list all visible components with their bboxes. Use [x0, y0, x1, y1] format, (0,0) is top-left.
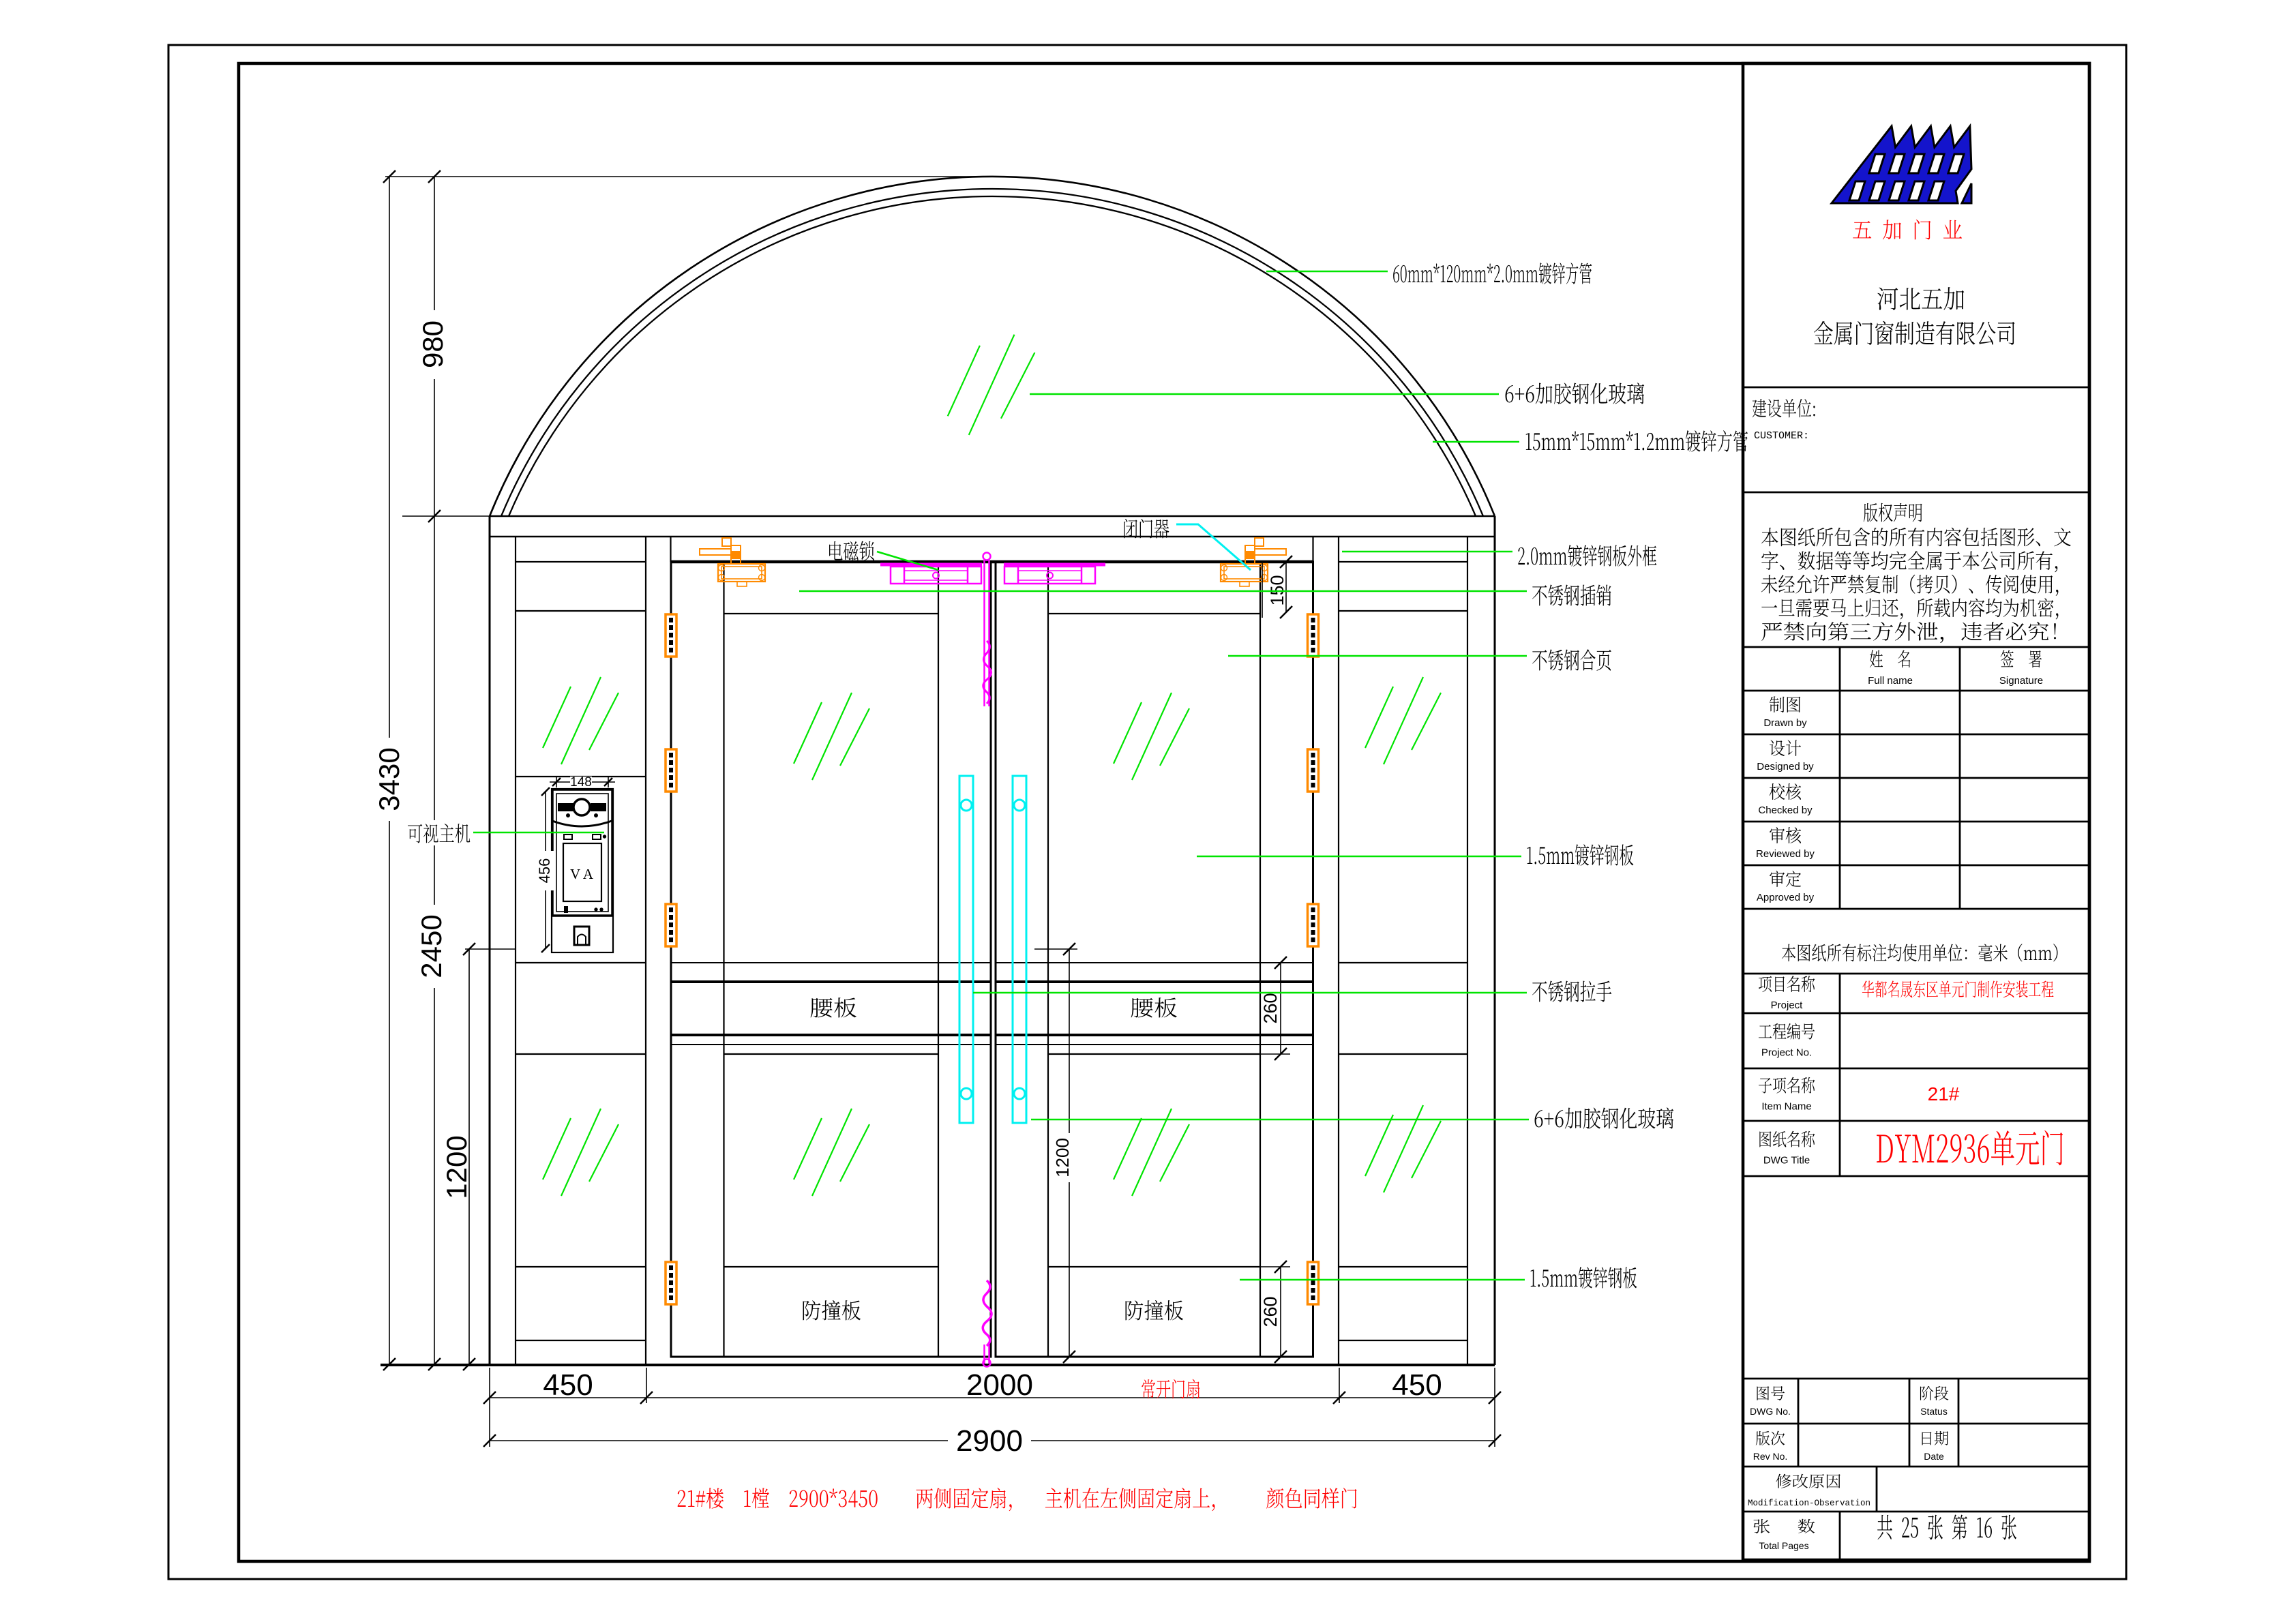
svg-text:2450: 2450 — [415, 914, 447, 978]
svg-text:2900: 2900 — [956, 1424, 1023, 1458]
svg-text:2000: 2000 — [966, 1368, 1033, 1402]
svg-text:Project: Project — [1771, 1000, 1804, 1011]
svg-text:148: 148 — [570, 775, 592, 790]
svg-text:Designed by: Designed by — [1757, 761, 1814, 772]
svg-text:V A: V A — [570, 866, 594, 882]
svg-text:450: 450 — [1392, 1368, 1442, 1402]
svg-text:Full name: Full name — [1868, 675, 1913, 687]
svg-text:Project No.: Project No. — [1761, 1047, 1812, 1059]
svg-text:Item Name: Item Name — [1761, 1101, 1811, 1113]
svg-text:CUSTOMER:: CUSTOMER: — [1754, 430, 1809, 442]
svg-text:Drawn by: Drawn by — [1763, 717, 1807, 729]
svg-text:Date: Date — [1924, 1451, 1944, 1462]
svg-text:1200: 1200 — [441, 1135, 473, 1199]
svg-text:DWG No.: DWG No. — [1750, 1406, 1791, 1417]
svg-text:260: 260 — [1260, 1296, 1281, 1327]
svg-text:456: 456 — [536, 858, 553, 884]
svg-text:Total Pages: Total Pages — [1759, 1540, 1808, 1551]
svg-text:Rev No.: Rev No. — [1753, 1451, 1788, 1462]
svg-text:DWG Title: DWG Title — [1763, 1155, 1810, 1167]
svg-text:3430: 3430 — [373, 747, 405, 811]
svg-text:260: 260 — [1260, 993, 1281, 1023]
svg-text:Modification-Observation: Modification-Observation — [1748, 1499, 1870, 1508]
svg-text:21#: 21# — [1928, 1083, 1960, 1105]
svg-text:Signature: Signature — [1999, 675, 2043, 687]
svg-text:450: 450 — [543, 1368, 593, 1402]
svg-text:Approved by: Approved by — [1757, 892, 1815, 903]
svg-text:Checked by: Checked by — [1758, 805, 1813, 816]
svg-text:1200: 1200 — [1052, 1138, 1073, 1177]
svg-text:980: 980 — [417, 320, 449, 368]
svg-text:Reviewed by: Reviewed by — [1756, 848, 1815, 860]
svg-text:Status: Status — [1920, 1406, 1948, 1417]
